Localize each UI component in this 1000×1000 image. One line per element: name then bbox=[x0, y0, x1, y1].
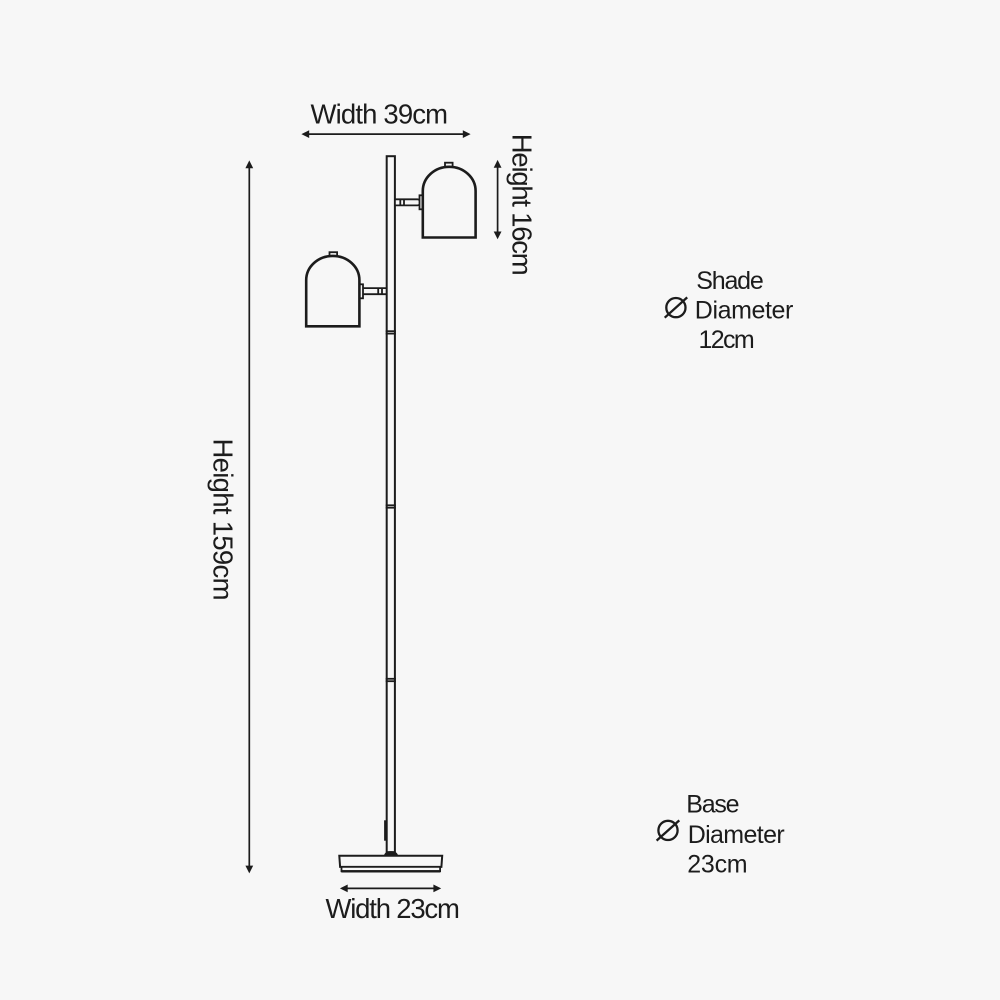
svg-text:Shade: Shade bbox=[696, 267, 763, 295]
svg-text:Height 16cm: Height 16cm bbox=[507, 134, 538, 275]
svg-text:Diameter: Diameter bbox=[695, 297, 793, 325]
svg-text:Width 39cm: Width 39cm bbox=[311, 99, 448, 130]
svg-text:Height 159cm: Height 159cm bbox=[208, 439, 239, 600]
svg-text:23cm: 23cm bbox=[687, 851, 747, 879]
svg-text:Base: Base bbox=[686, 791, 738, 819]
svg-text:Diameter: Diameter bbox=[688, 821, 785, 849]
svg-text:Width 23cm: Width 23cm bbox=[326, 893, 459, 924]
svg-text:12cm: 12cm bbox=[699, 326, 754, 354]
